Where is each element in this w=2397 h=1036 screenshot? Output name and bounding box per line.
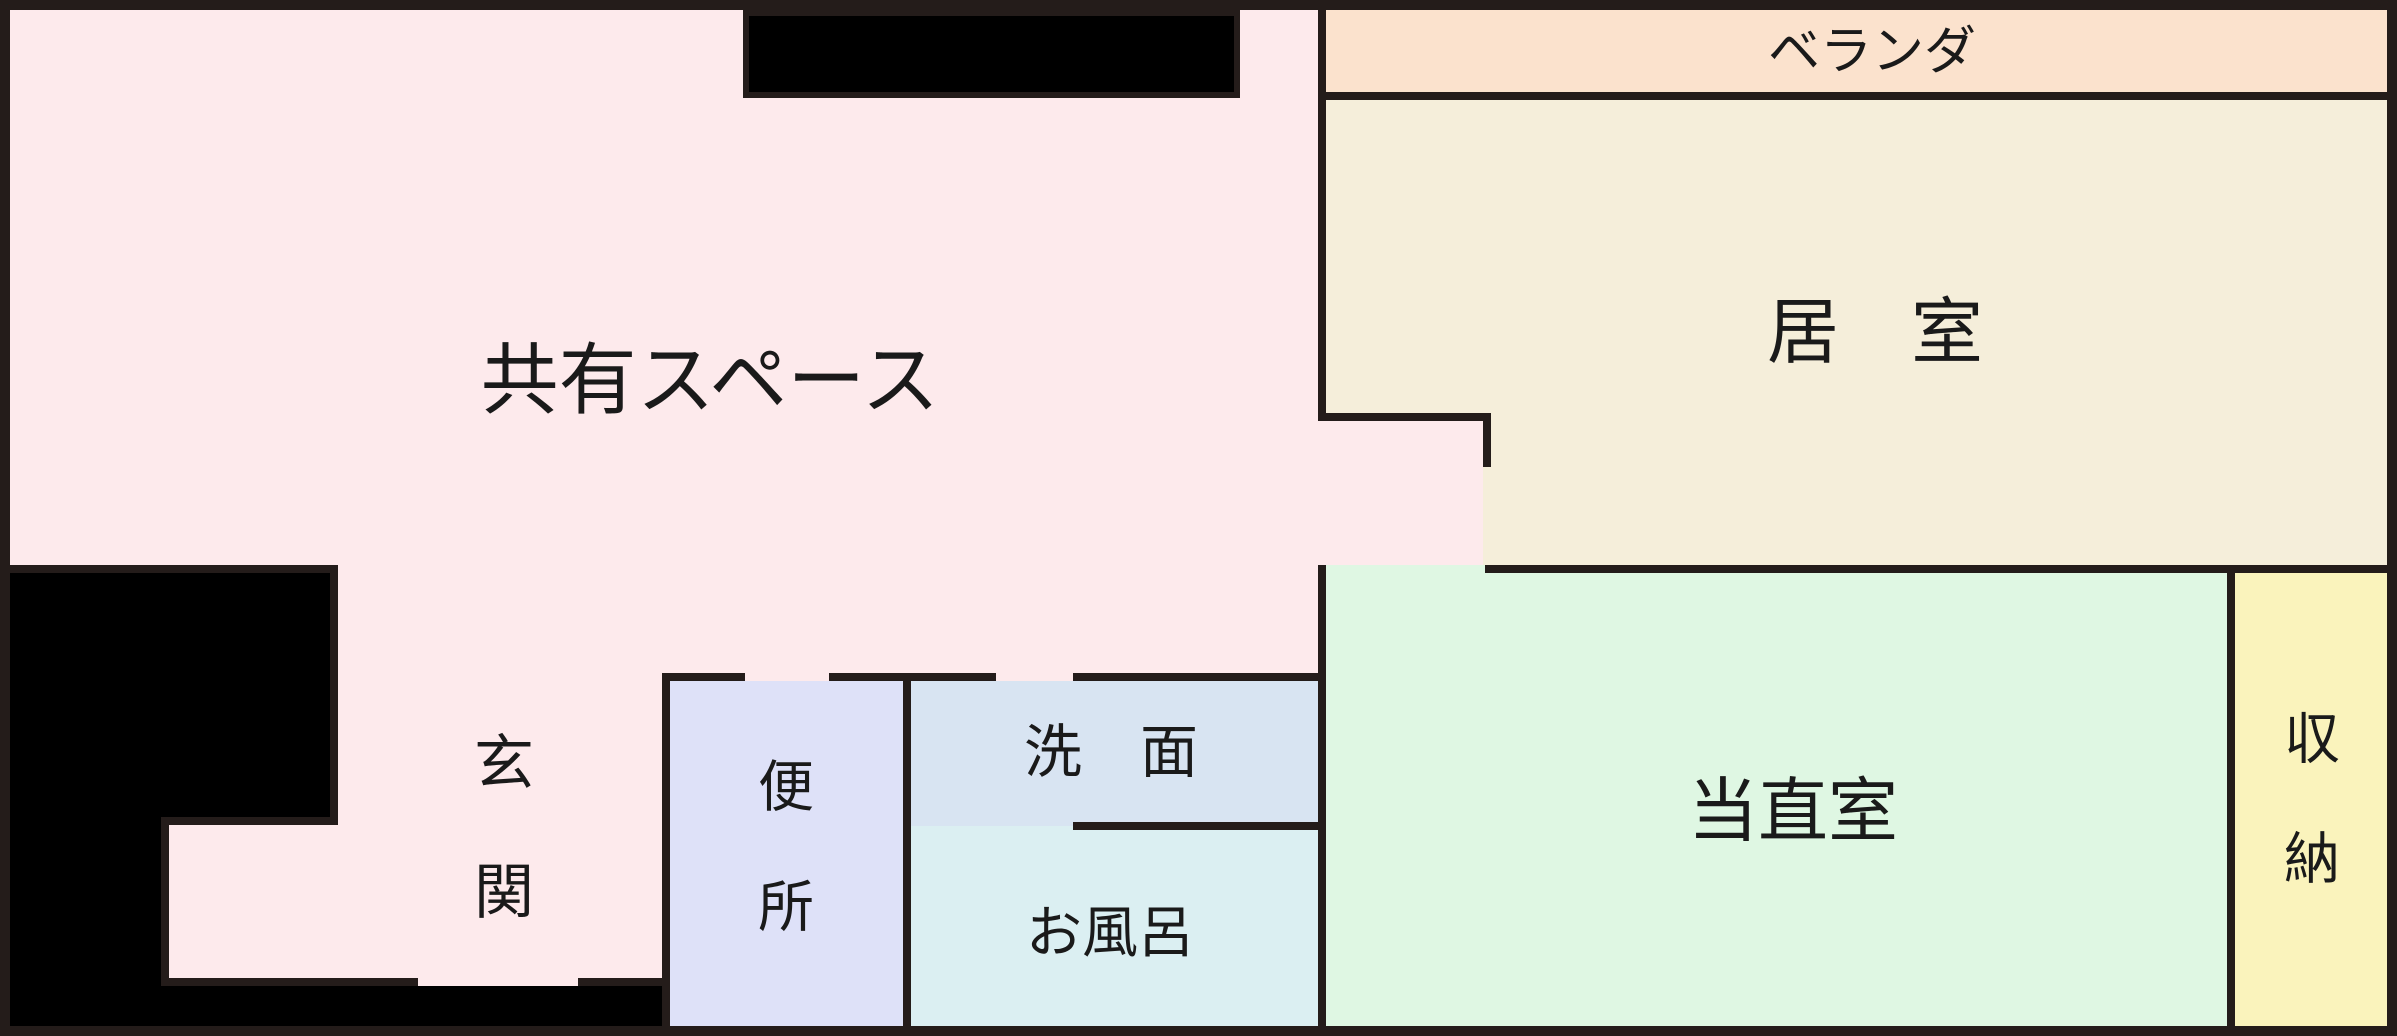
wall-veranda-bottom xyxy=(1326,92,2387,100)
storage-label: 収納 xyxy=(2284,680,2340,921)
wall-washroom-top xyxy=(1073,673,1326,681)
wall-living-door-stub xyxy=(1483,421,1491,467)
wall-main-vertical xyxy=(1318,10,1326,413)
duty-room-label: 当直室 xyxy=(1688,776,1898,846)
wall-storage-left xyxy=(2227,565,2235,1036)
wall-jog-horizontal xyxy=(1318,413,1491,421)
wall-bath-divider xyxy=(1073,822,1326,830)
wall-void-step xyxy=(161,817,338,825)
wall-duty-room-top xyxy=(1485,565,2387,573)
shared-space-extension xyxy=(1326,421,1483,565)
entrance-label: 玄関 xyxy=(474,699,534,957)
wall-void-upper-top xyxy=(0,565,338,573)
frame-top xyxy=(0,0,2397,10)
wall-toilet-right xyxy=(903,673,911,1036)
void-top-rect xyxy=(743,10,1240,98)
wall-duty-room-left xyxy=(1318,565,1326,1036)
wall-toilet-top-left xyxy=(662,673,745,681)
floor-plan: 共有スペース ベランダ 居 室 当直室 収納 玄関 便所 洗 面 お風呂 xyxy=(0,0,2397,1036)
wall-void-lower-right xyxy=(161,817,169,986)
wall-entrance-bottom-left xyxy=(161,978,418,986)
wall-toilet-top-right xyxy=(829,673,996,681)
wall-entrance-bottom-right xyxy=(578,978,670,986)
washroom-label: 洗 面 xyxy=(1024,724,1198,782)
toilet-label: 便所 xyxy=(758,728,814,969)
frame-left xyxy=(0,0,10,1036)
frame-bottom xyxy=(0,1026,2397,1036)
wall-void-upper-right xyxy=(330,565,338,825)
void-left-upper xyxy=(0,569,334,821)
living-room-label: 居 室 xyxy=(1767,297,1983,369)
shared-space-label: 共有スペース xyxy=(481,341,940,419)
veranda-label: ベランダ xyxy=(1768,26,1976,78)
bath-label: お風呂 xyxy=(1026,905,1194,961)
frame-right xyxy=(2387,0,2397,1036)
